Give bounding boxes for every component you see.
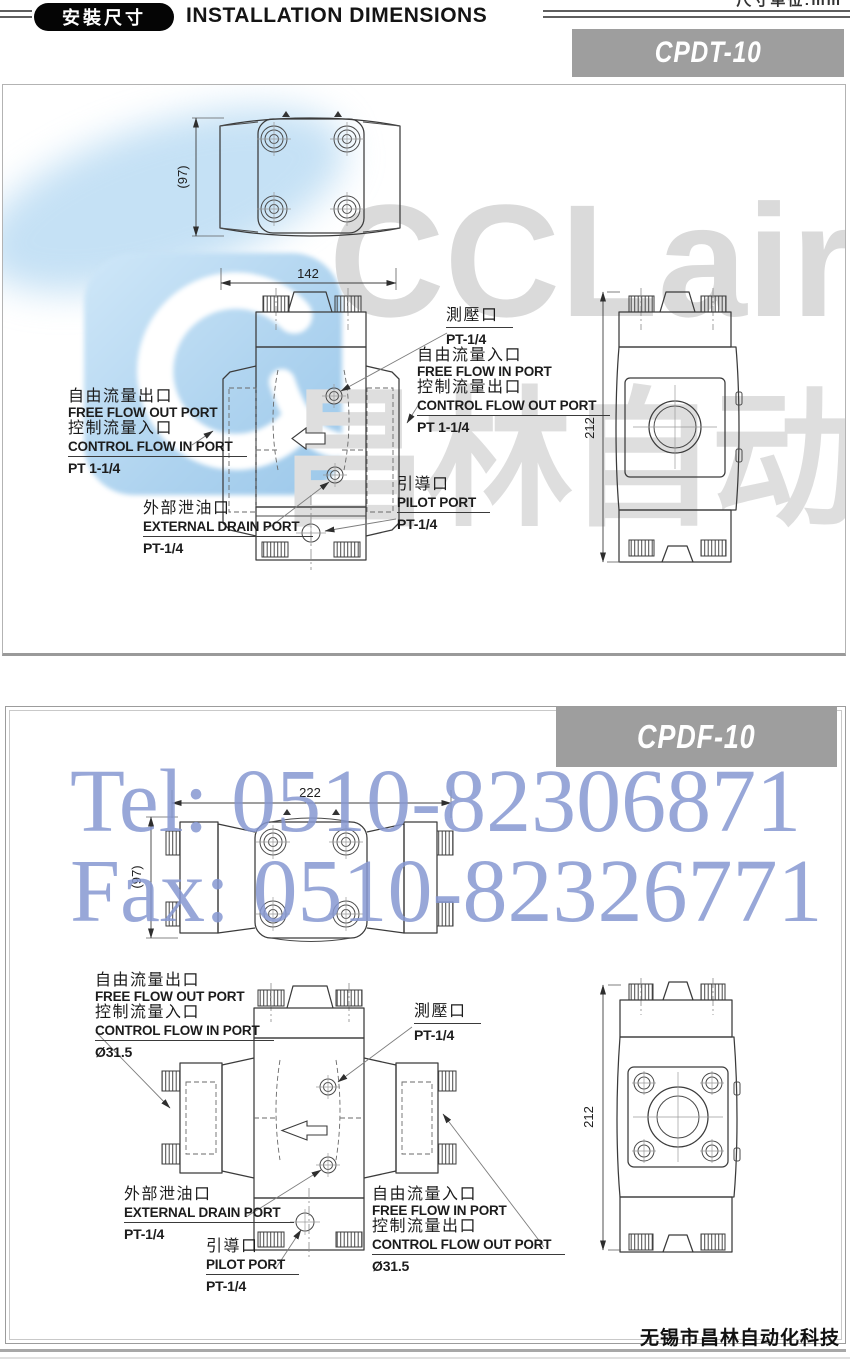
port-size: PT-1/4 xyxy=(206,1278,299,1294)
annotation-cpdt-free-flow-in-port: 自由流量入口 FREE FLOW IN PORT 控制流量出口 CONTROL … xyxy=(417,347,610,435)
port-label-en: FREE FLOW IN PORT xyxy=(372,1204,565,1218)
port-label-en: CONTROL FLOW OUT PORT xyxy=(372,1238,565,1255)
port-size: PT-1/4 xyxy=(143,540,313,556)
header-rule-right-bottom xyxy=(543,16,850,18)
port-size: PT 1-1/4 xyxy=(68,460,247,476)
model-label-cpdf-text: CPDF-10 xyxy=(637,718,756,756)
section-title-badge: 安裝尺寸 xyxy=(34,3,174,31)
watermark-logo-text: CCLair xyxy=(329,181,846,341)
port-label-en: CONTROL FLOW OUT PORT xyxy=(417,399,610,416)
port-size: Ø31.5 xyxy=(372,1258,565,1274)
page-title: INSTALLATION DIMENSIONS xyxy=(186,4,487,28)
port-label-cn: 控制流量入口 xyxy=(68,420,247,438)
port-size: PT-1/4 xyxy=(414,1027,481,1043)
port-label-cn: 外部泄油口 xyxy=(143,500,313,518)
port-label-en: FREE FLOW OUT PORT xyxy=(68,406,247,420)
port-label-en: PILOT PORT xyxy=(397,496,490,513)
port-label-cn: 測壓口 xyxy=(414,1003,481,1024)
catalog-page: { "header": { "badge": "安裝尺寸", "title": … xyxy=(0,0,850,1365)
port-label-cn: 自由流量入口 xyxy=(417,347,610,365)
header-rule-left-bottom xyxy=(0,16,32,18)
header-rule-left-top xyxy=(0,10,32,12)
annotation-cpdf-free-flow-in-port: 自由流量入口 FREE FLOW IN PORT 控制流量出口 CONTROL … xyxy=(372,1186,565,1274)
port-label-cn: 引導口 xyxy=(397,476,490,494)
port-label-cn: 測壓口 xyxy=(446,307,513,328)
port-label-cn: 控制流量出口 xyxy=(417,379,610,397)
port-label-en: FREE FLOW OUT PORT xyxy=(95,990,274,1004)
annotation-cpdf-free-flow-out-port: 自由流量出口 FREE FLOW OUT PORT 控制流量入口 CONTROL… xyxy=(95,972,274,1060)
annotation-cpdf-pilot-port: 引導口 PILOT PORT PT-1/4 xyxy=(206,1238,299,1294)
port-size: Ø31.5 xyxy=(95,1044,274,1060)
annotation-cpdf-external-drain-port: 外部泄油口 EXTERNAL DRAIN PORT PT-1/4 xyxy=(124,1186,294,1242)
port-label-cn: 控制流量入口 xyxy=(95,1004,274,1022)
port-label-en: CONTROL FLOW IN PORT xyxy=(68,440,247,457)
model-label-cpdt: CPDT-10 xyxy=(572,29,844,77)
footer-company-name: 无锡市昌林自动化科技 xyxy=(400,1323,840,1350)
annotation-cpdt-pilot-port: 引導口 PILOT PORT PT-1/4 xyxy=(397,476,490,532)
port-label-cn: 引導口 xyxy=(206,1238,299,1256)
port-label-en: PILOT PORT xyxy=(206,1258,299,1275)
port-size: PT-1/4 xyxy=(446,331,513,347)
annotation-cpdf-gauge-port: 測壓口 PT-1/4 xyxy=(414,1003,481,1043)
port-size: PT-1/4 xyxy=(397,516,490,532)
badge-label: 安裝尺寸 xyxy=(62,4,146,30)
port-label-en: CONTROL FLOW IN PORT xyxy=(95,1024,274,1041)
footer-rule-light xyxy=(0,1357,850,1359)
model-label-cpdf: CPDF-10 xyxy=(556,707,837,767)
port-label-cn: 自由流量入口 xyxy=(372,1186,565,1204)
port-label-cn: 外部泄油口 xyxy=(124,1186,294,1204)
clipped-corner-note: 尺寸单位:mm xyxy=(736,0,842,7)
port-label-cn: 自由流量出口 xyxy=(95,972,274,990)
port-label-cn: 自由流量出口 xyxy=(68,388,247,406)
annotation-cpdt-free-flow-out-port: 自由流量出口 FREE FLOW OUT PORT 控制流量入口 CONTROL… xyxy=(68,388,247,476)
port-label-cn: 控制流量出口 xyxy=(372,1218,565,1236)
annotation-cpdt-gauge-port: 測壓口 PT-1/4 xyxy=(446,307,513,347)
port-size: PT 1-1/4 xyxy=(417,419,610,435)
model-label-cpdt-text: CPDT-10 xyxy=(655,36,762,70)
port-label-en: EXTERNAL DRAIN PORT xyxy=(124,1206,294,1223)
header-rule-right-top xyxy=(543,10,850,12)
port-label-en: EXTERNAL DRAIN PORT xyxy=(143,520,313,537)
annotation-cpdt-external-drain-port: 外部泄油口 EXTERNAL DRAIN PORT PT-1/4 xyxy=(143,500,313,556)
port-label-en: FREE FLOW IN PORT xyxy=(417,365,610,379)
